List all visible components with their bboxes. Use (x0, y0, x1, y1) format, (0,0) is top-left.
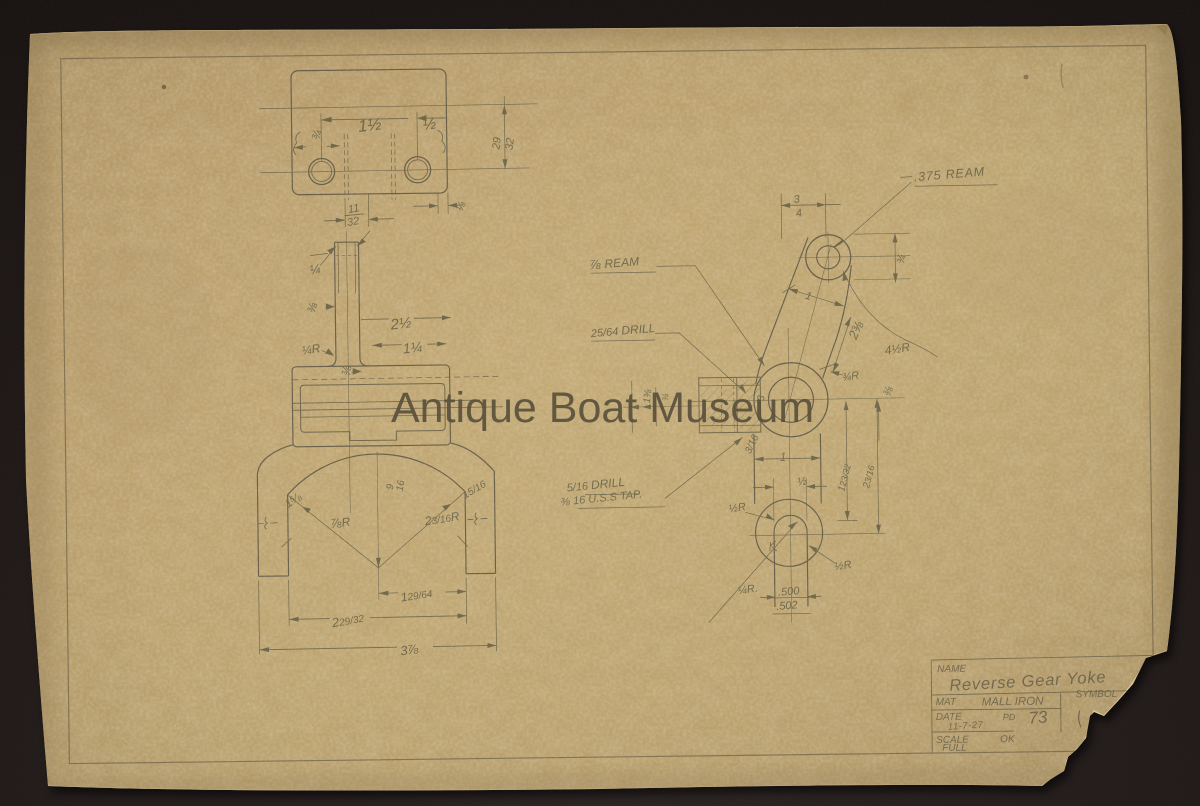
svg-text:32: 32 (346, 215, 360, 229)
svg-text:¾R: ¾R (841, 370, 860, 384)
svg-text:PD: PD (1003, 712, 1016, 722)
svg-text:⅞R: ⅞R (330, 514, 352, 532)
svg-text:29: 29 (490, 136, 504, 151)
svg-text:73: 73 (1028, 707, 1049, 728)
svg-text:11: 11 (347, 202, 360, 216)
svg-text:MAT: MAT (936, 697, 957, 708)
svg-text:.500: .500 (778, 585, 801, 599)
svg-text:.502: .502 (776, 599, 798, 613)
svg-text:2½: 2½ (389, 314, 413, 333)
svg-text:OK: OK (1000, 734, 1016, 745)
svg-text:1: 1 (780, 450, 787, 464)
svg-text:SYMBOL: SYMBOL (1076, 689, 1118, 701)
svg-text:Antique Boat Museum: Antique Boat Museum (391, 384, 814, 432)
svg-text:11-7-27: 11-7-27 (947, 720, 983, 733)
svg-text:32: 32 (503, 137, 516, 151)
svg-text:½: ½ (422, 115, 438, 134)
svg-text:¼R: ¼R (301, 341, 322, 358)
svg-text:NAME: NAME (937, 664, 966, 675)
svg-text:3⅞: 3⅞ (399, 641, 419, 659)
svg-text:1¼: 1¼ (402, 338, 424, 356)
svg-text:16: 16 (395, 479, 408, 492)
svg-text:½: ½ (797, 475, 808, 488)
svg-text:½R: ½R (834, 559, 853, 573)
svg-text:FULL: FULL (942, 743, 967, 754)
svg-text:1½: 1½ (357, 114, 383, 136)
svg-text:½R: ½R (728, 501, 747, 515)
svg-text:MALL IRON: MALL IRON (982, 696, 1045, 709)
